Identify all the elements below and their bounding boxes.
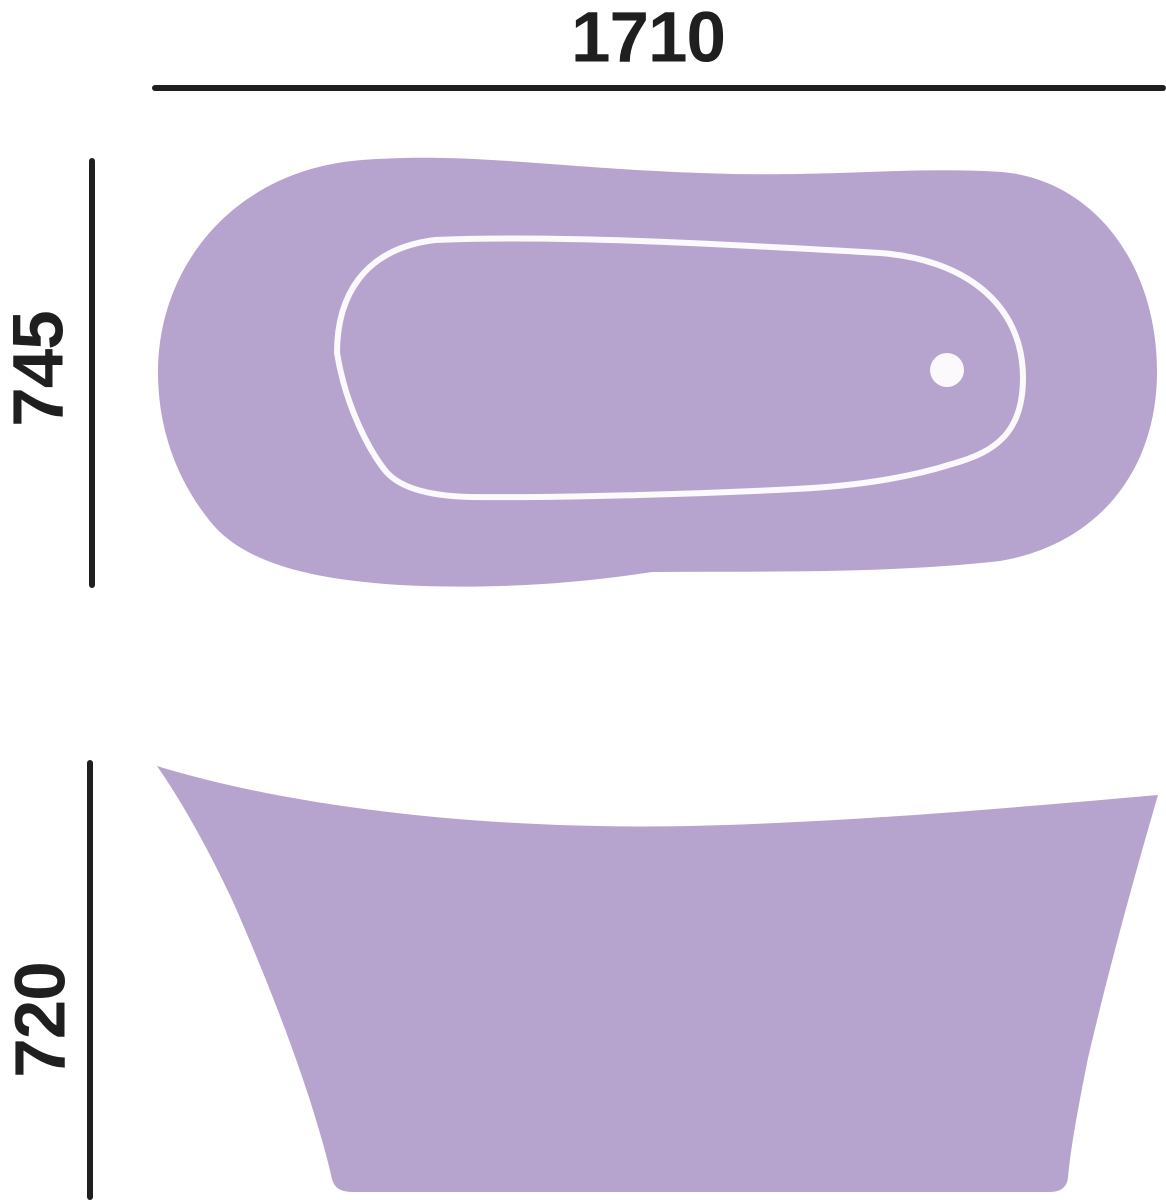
width-dimension-label: 1710 (571, 3, 725, 74)
diagram-canvas: 1710 745 720 (0, 0, 1166, 1200)
bathtub-diagram (0, 0, 1166, 1200)
side-view-outline (157, 766, 1158, 1192)
depth-dimension-label: 745 (4, 311, 75, 426)
height-dimension-line (87, 760, 93, 1200)
width-dimension-line (152, 85, 1166, 91)
top-view-outline (158, 158, 1157, 587)
height-dimension-label: 720 (6, 962, 77, 1077)
depth-dimension-line (89, 158, 95, 588)
drain-hole (930, 353, 964, 387)
